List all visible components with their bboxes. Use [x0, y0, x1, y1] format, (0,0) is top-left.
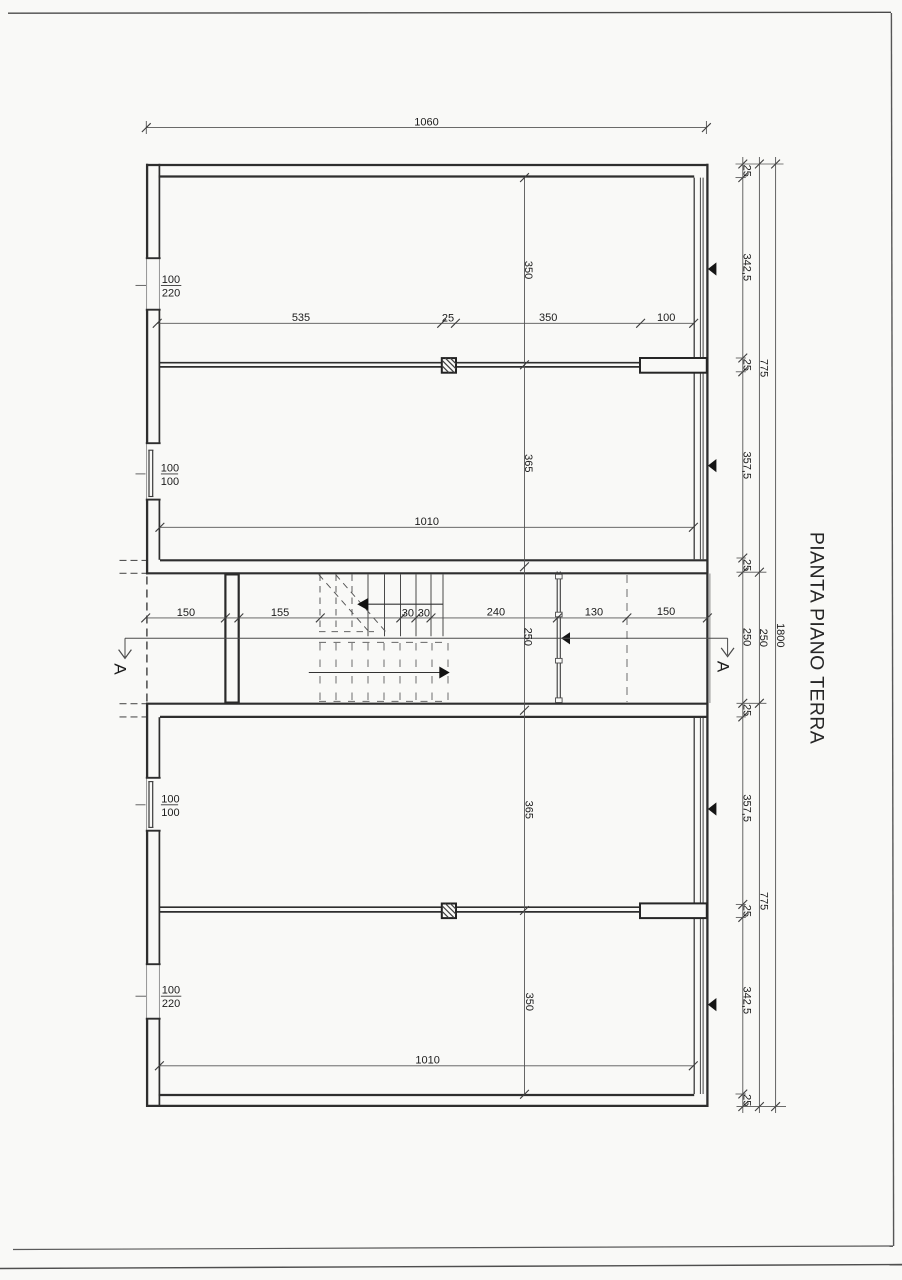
- svg-text:25: 25: [741, 165, 753, 177]
- svg-text:535: 535: [292, 312, 310, 324]
- svg-text:350: 350: [539, 312, 557, 324]
- svg-text:PIANTA PIANO TERRA: PIANTA PIANO TERRA: [805, 532, 827, 744]
- svg-text:775: 775: [758, 359, 770, 377]
- svg-text:350: 350: [522, 261, 534, 279]
- svg-text:100: 100: [657, 312, 675, 324]
- svg-text:100: 100: [161, 807, 179, 819]
- svg-text:A: A: [713, 661, 732, 673]
- svg-text:25: 25: [741, 1094, 753, 1106]
- svg-text:25: 25: [442, 312, 454, 324]
- svg-text:100: 100: [161, 793, 179, 805]
- svg-text:130: 130: [585, 606, 603, 618]
- svg-text:A: A: [111, 663, 130, 675]
- svg-text:100: 100: [161, 462, 179, 474]
- svg-text:25: 25: [741, 559, 753, 571]
- svg-text:155: 155: [271, 607, 289, 619]
- svg-text:775: 775: [758, 892, 770, 910]
- svg-text:1010: 1010: [415, 516, 439, 528]
- svg-text:365: 365: [523, 801, 535, 819]
- svg-text:365: 365: [522, 454, 534, 472]
- svg-text:1010: 1010: [415, 1054, 439, 1066]
- svg-text:357,5: 357,5: [741, 452, 753, 480]
- svg-text:240: 240: [487, 607, 505, 619]
- svg-text:220: 220: [162, 998, 180, 1010]
- svg-text:350: 350: [523, 993, 535, 1011]
- svg-text:30: 30: [402, 607, 414, 619]
- svg-text:100: 100: [162, 274, 180, 286]
- svg-text:30: 30: [418, 607, 430, 619]
- svg-text:250: 250: [522, 628, 534, 646]
- svg-text:250: 250: [741, 628, 753, 646]
- svg-text:1800: 1800: [774, 623, 786, 647]
- svg-text:357,5: 357,5: [741, 794, 753, 822]
- svg-text:150: 150: [177, 607, 195, 619]
- svg-text:1060: 1060: [414, 116, 438, 128]
- svg-text:25: 25: [741, 905, 753, 917]
- svg-text:342,5: 342,5: [741, 254, 753, 282]
- svg-text:250: 250: [757, 629, 769, 647]
- svg-text:150: 150: [657, 606, 675, 618]
- svg-text:220: 220: [162, 287, 180, 299]
- svg-text:25: 25: [741, 704, 753, 716]
- svg-text:100: 100: [162, 985, 180, 997]
- svg-text:25: 25: [741, 359, 753, 371]
- svg-text:342,5: 342,5: [741, 987, 753, 1015]
- svg-text:100: 100: [161, 476, 179, 488]
